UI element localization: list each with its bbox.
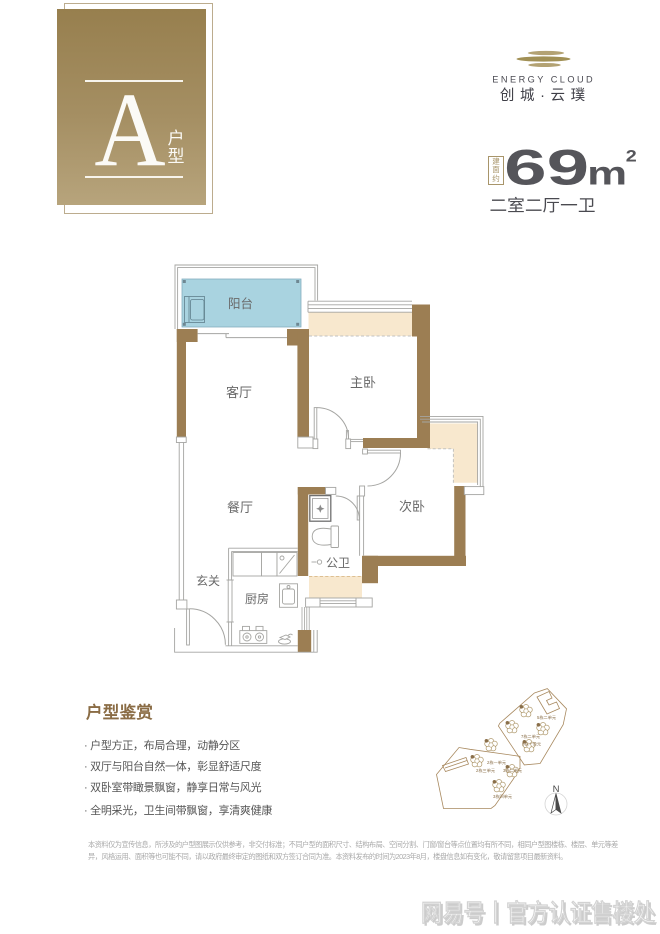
svg-text:厨房: 厨房 [245, 591, 269, 606]
svg-text:阳台: 阳台 [228, 296, 253, 311]
svg-text:5栋二单元: 5栋二单元 [537, 714, 556, 721]
svg-text:网易号丨官方认证售楼处: 网易号丨官方认证售楼处 [421, 899, 655, 927]
svg-text:次卧: 次卧 [399, 499, 425, 514]
svg-text:餐厅: 餐厅 [227, 500, 253, 515]
svg-text:公卫: 公卫 [326, 556, 350, 570]
svg-text:3栋二单元: 3栋二单元 [503, 767, 522, 774]
svg-text:7栋二单元: 7栋二单元 [521, 733, 540, 740]
svg-text:N: N [553, 784, 560, 795]
svg-text:3栋四单元: 3栋四单元 [493, 793, 512, 800]
svg-text:2栋一单元: 2栋一单元 [487, 759, 506, 766]
svg-text:5栋一单元: 5栋一单元 [522, 741, 541, 748]
svg-text:主卧: 主卧 [350, 375, 376, 390]
svg-text:玄关: 玄关 [196, 573, 220, 588]
svg-text:客厅: 客厅 [226, 385, 252, 400]
svg-text:2栋三单元: 2栋三单元 [476, 767, 495, 774]
